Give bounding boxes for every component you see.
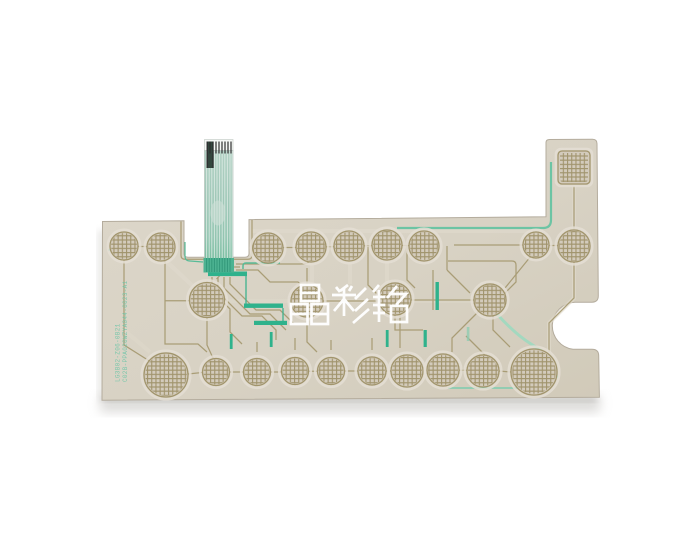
svg-text:C02B-PPA020WZYA044-0023-A1: C02B-PPA020WZYA044-0023-A1 (122, 280, 129, 382)
svg-text:LG3B02-Z06-0B21: LG3B02-Z06-0B21 (115, 323, 122, 382)
